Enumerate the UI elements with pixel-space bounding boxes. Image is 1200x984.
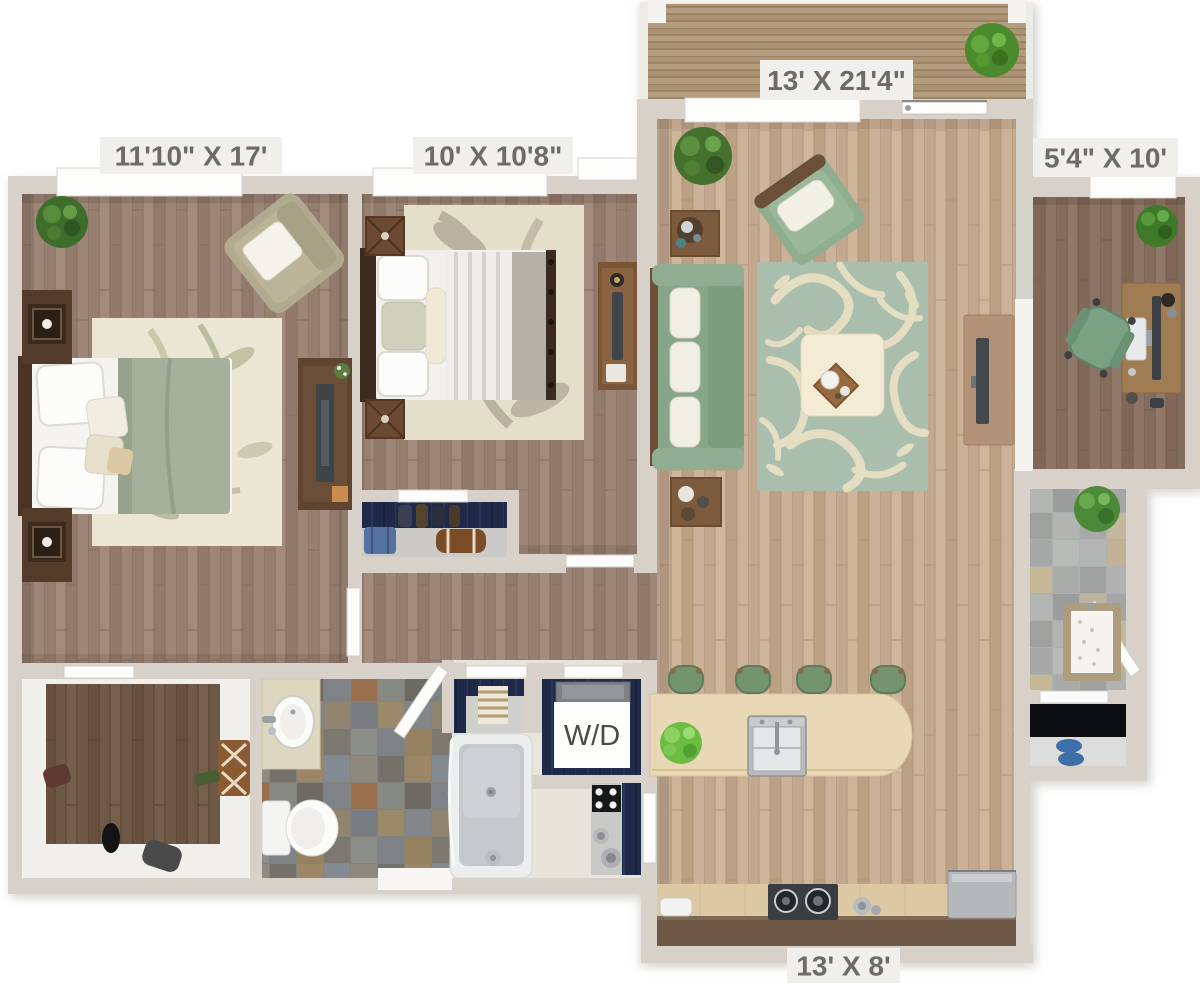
svg-text:13' X 8': 13' X 8'	[796, 951, 890, 982]
svg-text:5'4" X 10': 5'4" X 10'	[1044, 143, 1167, 174]
svg-text:W/D: W/D	[564, 720, 620, 752]
svg-text:13' X 21'4": 13' X 21'4"	[767, 65, 906, 96]
svg-text:10' X 10'8": 10' X 10'8"	[424, 141, 563, 172]
svg-text:11'10" X 17': 11'10" X 17'	[115, 141, 268, 172]
